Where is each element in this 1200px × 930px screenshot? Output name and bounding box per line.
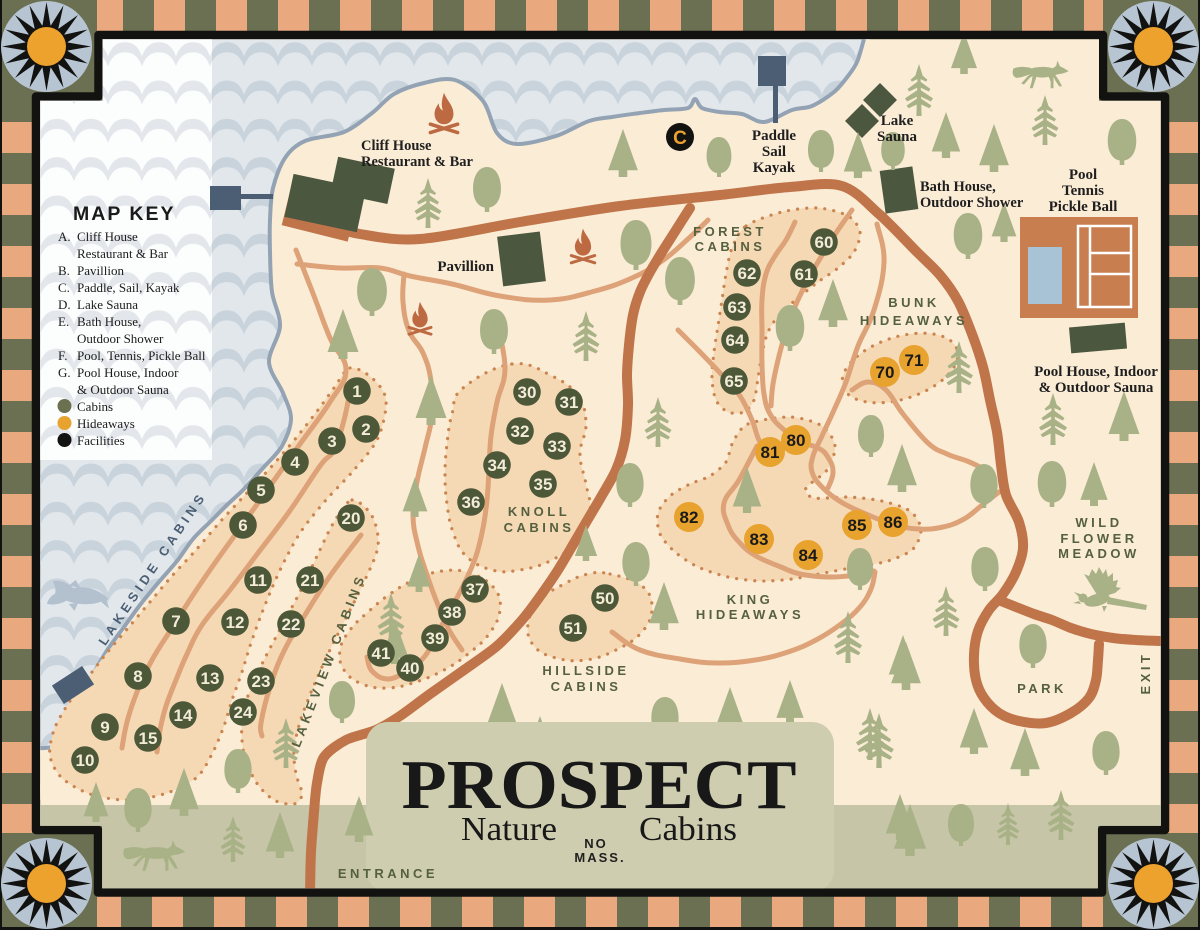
svg-text:HILLSIDE: HILLSIDE (542, 663, 629, 678)
svg-text:Nature: Nature (461, 811, 557, 848)
svg-text:MEADOW: MEADOW (1058, 546, 1140, 561)
svg-text:Kayak: Kayak (753, 160, 796, 176)
svg-text:ENTRANCE: ENTRANCE (338, 866, 438, 881)
svg-text:KNOLL: KNOLL (508, 504, 570, 519)
svg-text:13: 13 (201, 669, 220, 688)
svg-text:32: 32 (511, 422, 530, 441)
svg-text:15: 15 (139, 729, 158, 748)
svg-text:C: C (673, 128, 687, 149)
svg-text:30: 30 (518, 383, 537, 402)
svg-text:Hideaways: Hideaways (77, 416, 135, 431)
svg-text:WILD: WILD (1075, 515, 1122, 530)
svg-text:65: 65 (725, 372, 744, 391)
svg-text:51: 51 (564, 619, 583, 638)
svg-text:Sail: Sail (762, 144, 786, 160)
svg-text:Pavillion: Pavillion (437, 259, 494, 275)
svg-text:37: 37 (466, 580, 485, 599)
svg-text:11: 11 (249, 571, 267, 590)
svg-text:4: 4 (290, 453, 300, 472)
svg-text:& Outdoor Sauna: & Outdoor Sauna (1039, 380, 1154, 396)
svg-text:KING: KING (727, 592, 774, 607)
svg-text:Pavillion: Pavillion (77, 263, 124, 278)
svg-text:34: 34 (488, 456, 507, 475)
svg-text:3: 3 (327, 432, 336, 451)
svg-text:Facilities: Facilities (77, 433, 125, 448)
svg-text:41: 41 (372, 644, 391, 663)
svg-text:Cliff House: Cliff House (361, 138, 432, 154)
svg-text:10: 10 (76, 751, 95, 770)
svg-text:22: 22 (282, 615, 301, 634)
svg-text:35: 35 (534, 475, 553, 494)
svg-text:Pool, Tennis, Pickle Ball: Pool, Tennis, Pickle Ball (77, 348, 206, 363)
svg-text:B.: B. (58, 263, 70, 278)
svg-text:24: 24 (234, 703, 253, 722)
svg-text:Outdoor Shower: Outdoor Shower (77, 331, 164, 346)
svg-text:F.: F. (58, 348, 67, 363)
svg-text:82: 82 (680, 508, 699, 527)
svg-text:E.: E. (58, 314, 69, 329)
svg-text:2: 2 (361, 420, 370, 439)
svg-text:Cabins: Cabins (639, 811, 737, 848)
svg-text:21: 21 (301, 571, 320, 590)
svg-text:EXIT: EXIT (1138, 652, 1153, 695)
svg-text:9: 9 (100, 718, 109, 737)
svg-text:62: 62 (738, 264, 757, 283)
svg-text:64: 64 (726, 331, 745, 350)
svg-text:60: 60 (815, 233, 834, 252)
svg-text:Bath House,: Bath House, (920, 179, 996, 195)
svg-text:FOREST: FOREST (693, 224, 767, 239)
svg-text:84: 84 (799, 546, 818, 565)
svg-text:HIDEAWAYS: HIDEAWAYS (860, 313, 968, 328)
svg-text:Lake Sauna: Lake Sauna (77, 297, 138, 312)
svg-text:23: 23 (252, 672, 271, 691)
svg-text:70: 70 (876, 363, 895, 382)
svg-text:40: 40 (401, 659, 420, 678)
svg-text:MAP KEY: MAP KEY (73, 203, 176, 225)
svg-text:12: 12 (226, 613, 245, 632)
svg-text:36: 36 (462, 493, 481, 512)
svg-text:MASS.: MASS. (574, 850, 625, 865)
svg-text:86: 86 (884, 513, 903, 532)
svg-text:HIDEAWAYS: HIDEAWAYS (696, 607, 804, 622)
svg-text:Outdoor Shower: Outdoor Shower (920, 195, 1024, 211)
svg-text:Tennis: Tennis (1062, 183, 1104, 199)
svg-text:D.: D. (58, 297, 71, 312)
svg-text:CABINS: CABINS (504, 520, 575, 535)
svg-text:Cliff House: Cliff House (77, 229, 138, 244)
svg-text:80: 80 (787, 431, 806, 450)
svg-text:Pool House, Indoor: Pool House, Indoor (1034, 364, 1158, 380)
svg-text:A.: A. (58, 229, 71, 244)
svg-text:1: 1 (352, 382, 361, 401)
svg-text:39: 39 (426, 629, 445, 648)
svg-text:Paddle: Paddle (752, 128, 797, 144)
svg-text:61: 61 (795, 265, 814, 284)
svg-text:63: 63 (728, 298, 747, 317)
svg-text:7: 7 (171, 612, 180, 631)
svg-text:31: 31 (560, 393, 579, 412)
svg-text:5: 5 (256, 481, 265, 500)
svg-text:NO: NO (584, 836, 608, 851)
svg-text:Cabins: Cabins (77, 399, 113, 414)
svg-text:Paddle, Sail, Kayak: Paddle, Sail, Kayak (77, 280, 180, 295)
svg-text:50: 50 (596, 589, 615, 608)
svg-text:CABINS: CABINS (551, 679, 622, 694)
svg-text:G.: G. (58, 365, 71, 380)
svg-text:85: 85 (848, 516, 867, 535)
svg-text:CABINS: CABINS (695, 239, 766, 254)
svg-text:6: 6 (238, 516, 247, 535)
svg-text:Bath House,: Bath House, (77, 314, 141, 329)
svg-text:BUNK: BUNK (888, 295, 940, 310)
svg-text:Lake: Lake (881, 113, 914, 129)
svg-text:14: 14 (174, 706, 193, 725)
svg-text:38: 38 (443, 603, 462, 622)
svg-text:20: 20 (342, 509, 361, 528)
svg-text:C.: C. (58, 280, 70, 295)
svg-text:Restaurant & Bar: Restaurant & Bar (77, 246, 169, 261)
svg-text:Pool: Pool (1069, 167, 1097, 183)
svg-text:& Outdoor Sauna: & Outdoor Sauna (77, 382, 169, 397)
svg-text:Sauna: Sauna (877, 129, 918, 145)
svg-text:8: 8 (133, 667, 142, 686)
svg-text:Restaurant & Bar: Restaurant & Bar (361, 154, 474, 170)
svg-text:PARK: PARK (1017, 681, 1067, 696)
svg-text:71: 71 (905, 351, 924, 370)
svg-text:81: 81 (761, 443, 780, 462)
svg-text:FLOWER: FLOWER (1060, 531, 1137, 546)
svg-text:Pool House, Indoor: Pool House, Indoor (77, 365, 179, 380)
svg-text:83: 83 (750, 530, 769, 549)
svg-text:33: 33 (548, 437, 567, 456)
svg-text:Pickle Ball: Pickle Ball (1049, 199, 1118, 215)
